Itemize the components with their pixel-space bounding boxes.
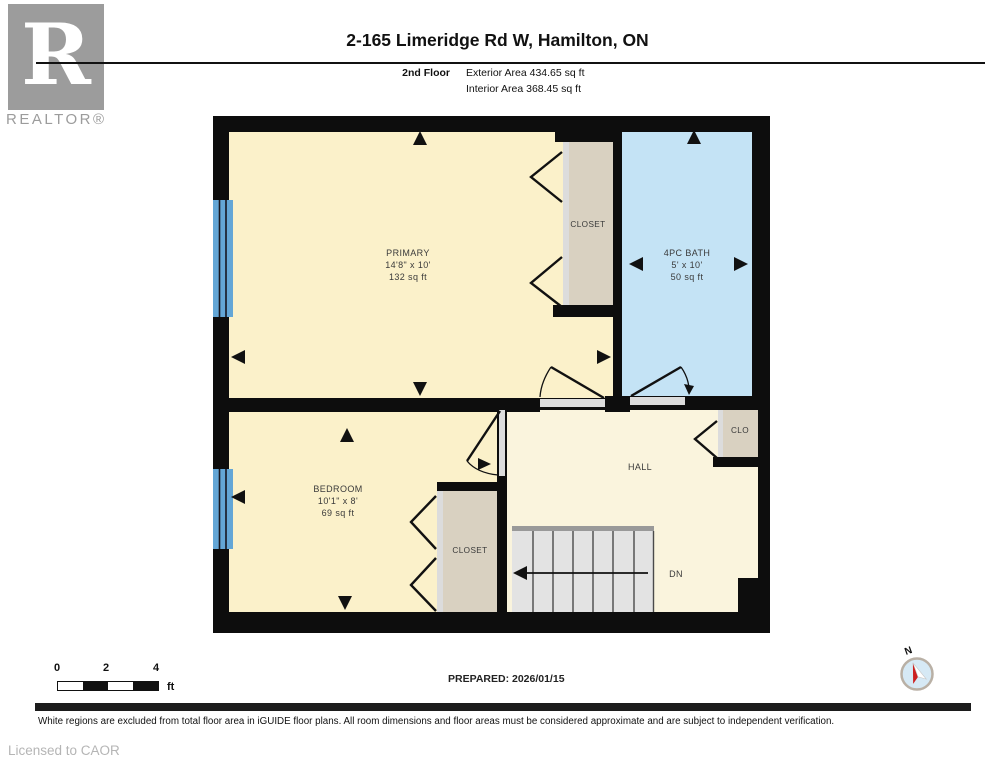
scale-tick-4: 4 bbox=[153, 662, 159, 674]
compass-icon: N bbox=[902, 645, 933, 689]
scale-segment bbox=[108, 682, 133, 690]
scale-bar-ticks: 0 2 4 bbox=[52, 662, 172, 675]
scale-bar bbox=[57, 681, 159, 691]
license-text: Licensed to CAOR bbox=[8, 743, 120, 758]
bath-label: 4PC BATH bbox=[664, 248, 711, 258]
scale-unit-label: ft bbox=[167, 681, 174, 693]
primary-label: PRIMARY bbox=[386, 248, 430, 258]
bedroom-dims: 10'1" x 8' bbox=[318, 496, 358, 506]
compass-north-label: N bbox=[903, 645, 914, 658]
bath-dims: 5' x 10' bbox=[671, 260, 702, 270]
bath-area: 50 sq ft bbox=[671, 272, 704, 282]
stairs-down-label: DN bbox=[669, 569, 683, 579]
scale-segment bbox=[58, 682, 83, 690]
primary-dims: 14'8" x 10' bbox=[385, 260, 431, 270]
prepared-date: PREPARED: 2026/01/15 bbox=[448, 673, 565, 685]
primary-area: 132 sq ft bbox=[389, 272, 427, 282]
floorplan-drawing: PRIMARY 14'8" x 10' 132 sq ft CLOSET 4PC… bbox=[0, 0, 995, 768]
hall-label: HALL bbox=[628, 462, 652, 472]
closet-bottom-label: CLOSET bbox=[452, 546, 487, 555]
scale-tick-0: 0 bbox=[54, 662, 60, 674]
stairs bbox=[512, 526, 654, 612]
clo-label: CLO bbox=[731, 426, 749, 435]
footer-divider bbox=[35, 703, 971, 711]
scale-segment bbox=[133, 682, 158, 690]
floorplan-page: R REALTOR® 2-165 Limeridge Rd W, Hamilto… bbox=[0, 0, 995, 768]
bedroom-area: 69 sq ft bbox=[322, 508, 355, 518]
scale-segment bbox=[83, 682, 108, 690]
scale-tick-2: 2 bbox=[103, 662, 109, 674]
bedroom-label: BEDROOM bbox=[313, 484, 362, 494]
closet-top-label: CLOSET bbox=[570, 220, 605, 229]
disclaimer-text: White regions are excluded from total fl… bbox=[38, 716, 968, 727]
